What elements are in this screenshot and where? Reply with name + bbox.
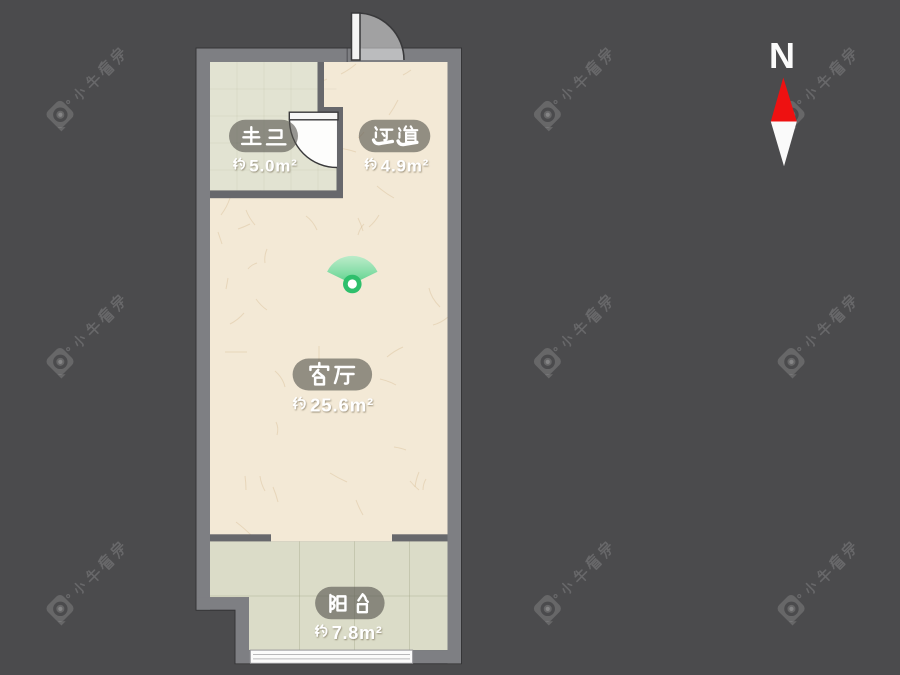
svg-text:25.6m²: 25.6m² — [310, 395, 374, 416]
svg-text:4.9m²: 4.9m² — [381, 157, 429, 176]
svg-text:7.8m²: 7.8m² — [332, 623, 383, 643]
svg-text:5.0m²: 5.0m² — [249, 157, 297, 176]
svg-text:N: N — [769, 35, 795, 76]
